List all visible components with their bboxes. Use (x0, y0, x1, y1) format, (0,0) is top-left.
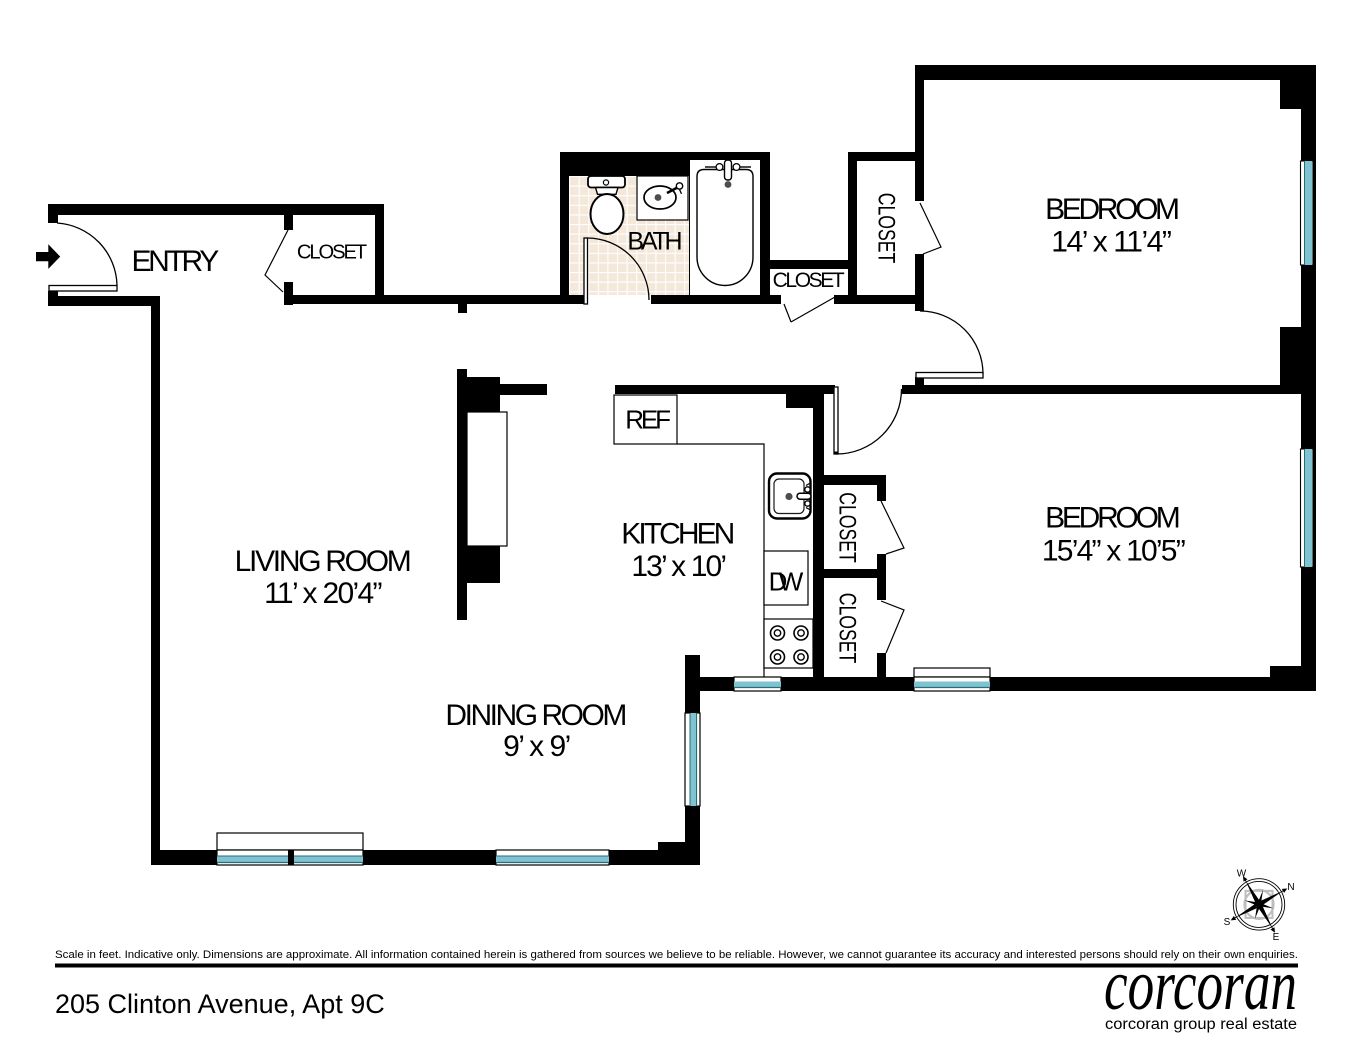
svg-text:DINING ROOM: DINING ROOM (445, 699, 627, 732)
svg-text:BEDROOM: BEDROOM (1045, 193, 1180, 226)
svg-text:15’4” x 10’5”: 15’4” x 10’5” (1042, 534, 1186, 567)
svg-text:W: W (1237, 869, 1247, 880)
svg-text:9’ x 9’: 9’ x 9’ (503, 730, 571, 763)
svg-text:CLOSET: CLOSET (773, 269, 845, 292)
svg-text:14’ x 11’4”: 14’ x 11’4” (1051, 226, 1172, 259)
svg-text:BEDROOM: BEDROOM (1045, 502, 1181, 535)
svg-text:205 Clinton Avenue, Apt 9C: 205 Clinton Avenue, Apt 9C (55, 989, 385, 1019)
svg-text:CLOSET: CLOSET (297, 242, 367, 264)
svg-text:LIVING ROOM: LIVING ROOM (235, 545, 412, 578)
svg-text:KITCHEN: KITCHEN (621, 518, 735, 551)
svg-text:E: E (1273, 932, 1280, 943)
svg-text:corcoran: corcoran (1104, 945, 1297, 1025)
svg-text:CLOSET: CLOSET (834, 593, 862, 664)
svg-text:N: N (1287, 882, 1294, 893)
svg-text:DW: DW (769, 567, 804, 597)
svg-text:ENTRY: ENTRY (131, 245, 219, 278)
svg-text:BATH: BATH (627, 227, 682, 255)
svg-text:corcoran group real estate: corcoran group real estate (1105, 1016, 1297, 1033)
svg-text:REF: REF (625, 404, 671, 434)
svg-text:S: S (1224, 917, 1231, 928)
svg-text:CLOSET: CLOSET (834, 492, 862, 563)
svg-text:CLOSET: CLOSET (873, 193, 901, 264)
svg-text:13’ x 10’: 13’ x 10’ (631, 550, 727, 583)
svg-text:11’ x 20’4”: 11’ x 20’4” (264, 577, 382, 610)
